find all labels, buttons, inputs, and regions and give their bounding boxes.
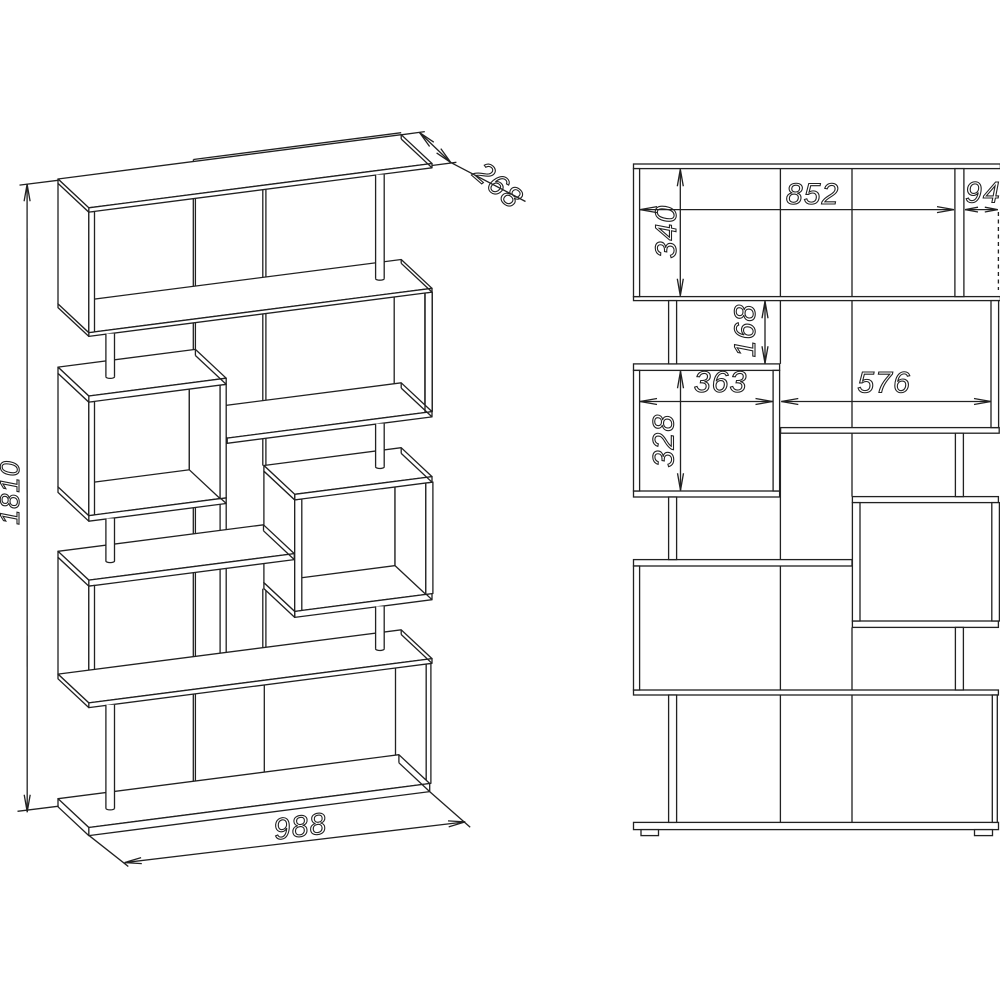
svg-text:94: 94 <box>965 176 1000 209</box>
svg-text:340: 340 <box>650 205 683 259</box>
svg-text:852: 852 <box>786 178 840 211</box>
svg-text:168: 168 <box>729 304 762 358</box>
svg-text:328: 328 <box>648 414 681 468</box>
svg-text:1810: 1810 <box>0 460 25 525</box>
svg-text:363: 363 <box>694 366 748 399</box>
svg-text:576: 576 <box>857 367 911 400</box>
svg-text:988: 988 <box>272 807 329 847</box>
